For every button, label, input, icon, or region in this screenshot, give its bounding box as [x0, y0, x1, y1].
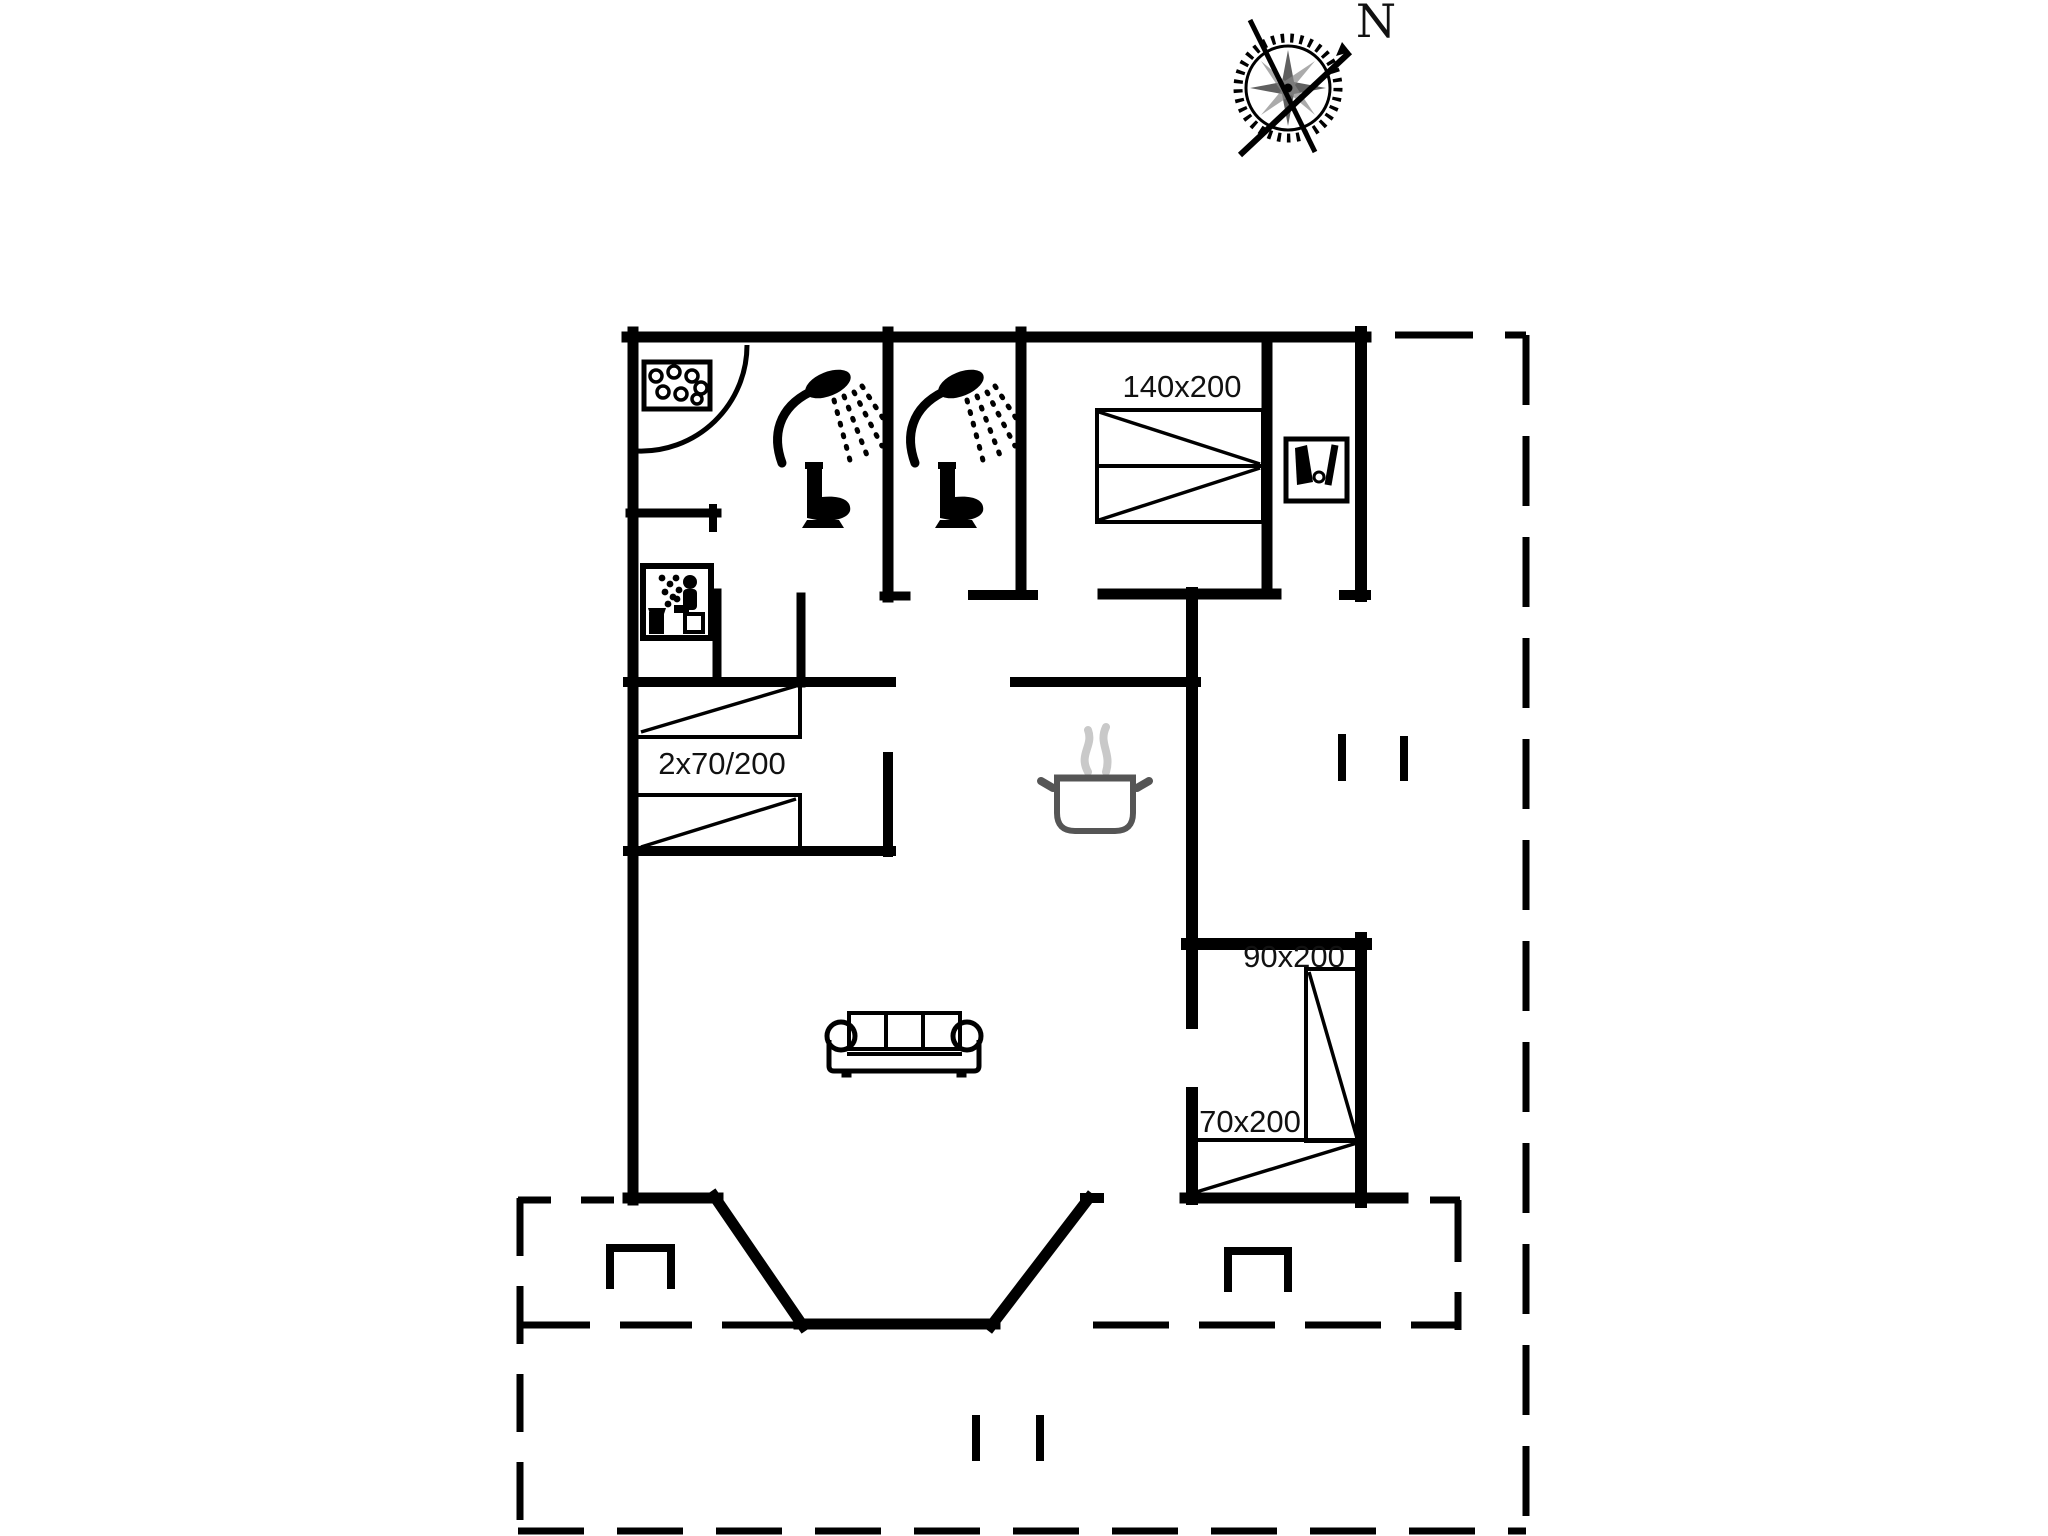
steam: [1085, 730, 1090, 772]
floor-plan: N 140x200 2x70/200 90x200 70x200: [0, 0, 2048, 1536]
compass-north-label: N: [1356, 0, 1396, 48]
compass-rose-icon: [1238, 20, 1350, 155]
bunk-bed-top: [635, 683, 800, 737]
bunk-bed-bottom: [635, 795, 800, 851]
sofa-icon: [827, 1013, 981, 1077]
single-bed-90x200: [1306, 969, 1360, 1141]
toilet-icon: [802, 462, 850, 528]
shower-icon: [911, 364, 1025, 468]
double-bed-size-label: 140x200: [1123, 369, 1242, 404]
single-bed-70-size-label: 70x200: [1199, 1104, 1301, 1139]
shower-icon: [778, 364, 892, 468]
double-bed-140x200: [1097, 410, 1263, 522]
toilet-icon: [935, 462, 983, 528]
steam: [1103, 727, 1107, 772]
wardrobe-icon: [1286, 439, 1347, 501]
bunk-bed-size-label: 2x70/200: [658, 746, 786, 781]
sauna-icon: [643, 566, 711, 638]
whirlpool-icon: [637, 345, 747, 451]
single-bed-90-size-label: 90x200: [1243, 939, 1345, 974]
terrace-post-icon: [610, 1248, 1288, 1292]
cooking-pot-icon: [1041, 727, 1149, 831]
floor-plan-drawing: N 140x200 2x70/200 90x200 70x200: [0, 0, 2048, 1536]
single-bed-70x200: [1190, 1140, 1360, 1196]
